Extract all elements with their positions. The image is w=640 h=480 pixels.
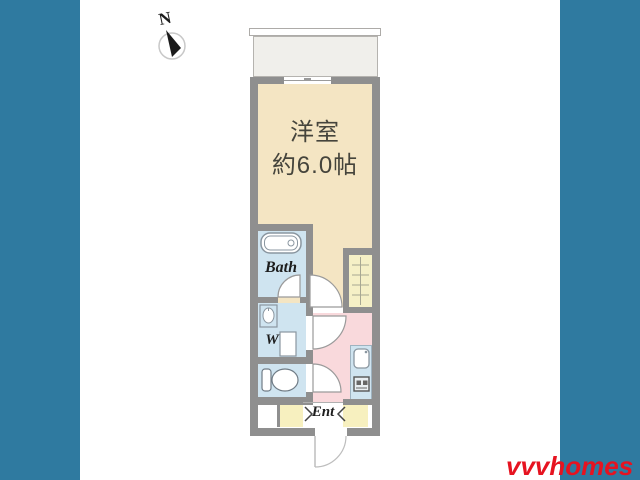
main-room-name: 洋室 <box>258 116 372 149</box>
balcony-ledge <box>249 28 381 36</box>
wall-washroom-toilet <box>258 357 313 364</box>
entrance-tile-right <box>343 405 368 427</box>
main-room-size: 約6.0帖 <box>258 149 372 182</box>
main-room-label: 洋室 約6.0帖 <box>258 116 372 182</box>
toilet-area <box>258 364 306 397</box>
compass-north-label: N <box>157 8 173 30</box>
wall-above-right-tile <box>343 399 372 405</box>
wall-room-bottom <box>343 307 372 313</box>
wall-left <box>250 77 258 436</box>
wall-tile-divider <box>277 405 280 427</box>
window-icon <box>284 78 331 81</box>
balcony-area <box>253 36 378 77</box>
floorplan-page: N 洋室 約6.0帖 Bath W Ent W homes vvvhomes <box>0 0 640 480</box>
right-color-band <box>560 0 640 480</box>
entrance-tile-left <box>280 405 303 427</box>
washer-label: W <box>261 332 283 349</box>
shoe-closet-area <box>349 255 372 307</box>
wall-corridor-upper <box>306 224 313 316</box>
brand-logo: vvvhomes <box>506 451 636 480</box>
door-arc-entrance <box>315 428 347 467</box>
entrance-label: Ent <box>303 404 343 421</box>
wall-bath-bottom-left <box>258 297 278 303</box>
wall-right <box>372 77 380 436</box>
wall-corridor-mid <box>306 350 313 364</box>
wall-bath-top <box>250 224 313 231</box>
entrance-storage-nook <box>261 405 277 427</box>
wall-closet-left <box>343 248 349 307</box>
bath-label: Bath <box>258 259 304 277</box>
entrance-step-line <box>303 402 343 403</box>
north-arrow-icon <box>159 30 185 59</box>
kitchen-counter-area <box>350 345 372 400</box>
wall-bottom-left <box>250 428 315 436</box>
wall-bottom-right <box>347 428 380 436</box>
left-color-band <box>0 0 80 480</box>
